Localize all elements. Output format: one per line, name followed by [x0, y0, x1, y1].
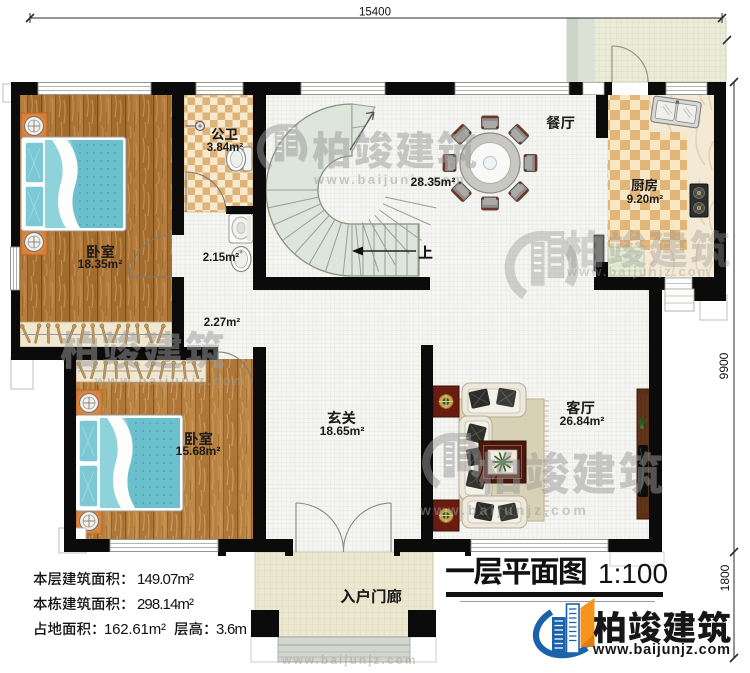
- svg-text:www.baijunjz.com: www.baijunjz.com: [281, 653, 418, 667]
- svg-text:3.84m²: 3.84m²: [207, 142, 244, 154]
- svg-text:1:100: 1:100: [598, 558, 668, 589]
- svg-text:9900: 9900: [717, 352, 731, 379]
- svg-text:28.35m²: 28.35m²: [411, 175, 456, 189]
- svg-text:2.15m²: 2.15m²: [203, 252, 240, 264]
- svg-text:www.baijunjz.com: www.baijunjz.com: [94, 373, 247, 388]
- svg-text:9.20m²: 9.20m²: [627, 194, 664, 206]
- svg-text:www.baijunjz.com: www.baijunjz.com: [592, 642, 730, 658]
- svg-text:149.07m²: 149.07m²: [137, 571, 194, 588]
- svg-text:www.baijunjz.com: www.baijunjz.com: [419, 502, 589, 518]
- svg-text:15.68m²: 15.68m²: [176, 444, 221, 458]
- svg-text:www.baijunjz.com: www.baijunjz.com: [566, 264, 711, 279]
- svg-text:162.61m²: 162.61m²: [104, 621, 166, 638]
- svg-text:18.35m²: 18.35m²: [78, 257, 123, 271]
- svg-text:1800: 1800: [718, 564, 732, 591]
- svg-text:15400: 15400: [359, 7, 391, 19]
- svg-text:18.65m²: 18.65m²: [320, 424, 365, 438]
- svg-text:26.84m²: 26.84m²: [560, 414, 605, 428]
- svg-text:298.14m²: 298.14m²: [137, 596, 194, 613]
- svg-text:2.27m²: 2.27m²: [204, 317, 241, 329]
- svg-text:3.6m: 3.6m: [216, 621, 247, 638]
